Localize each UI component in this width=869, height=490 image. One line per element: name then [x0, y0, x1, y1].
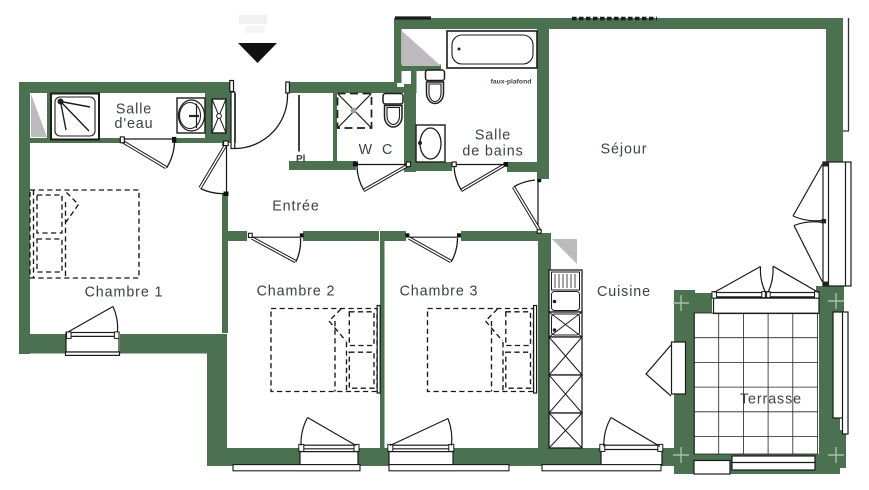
svg-text:Entrée: Entrée	[272, 199, 320, 215]
svg-text:Pl: Pl	[296, 154, 306, 165]
svg-text:Chambre 3: Chambre 3	[400, 284, 479, 300]
svg-text:faux-plafond: faux-plafond	[491, 79, 532, 86]
svg-text:Cuisine: Cuisine	[597, 284, 651, 300]
svg-text:Chambre 2: Chambre 2	[257, 284, 336, 300]
svg-text:Salle: Salle	[475, 128, 511, 144]
svg-text:de bains: de bains	[462, 144, 523, 160]
svg-text:d'eau: d'eau	[114, 116, 153, 132]
svg-text:Chambre 1: Chambre 1	[85, 285, 164, 301]
svg-text:Terrasse: Terrasse	[740, 392, 802, 408]
svg-text:Séjour: Séjour	[601, 142, 648, 158]
svg-text:W C: W C	[359, 142, 396, 158]
